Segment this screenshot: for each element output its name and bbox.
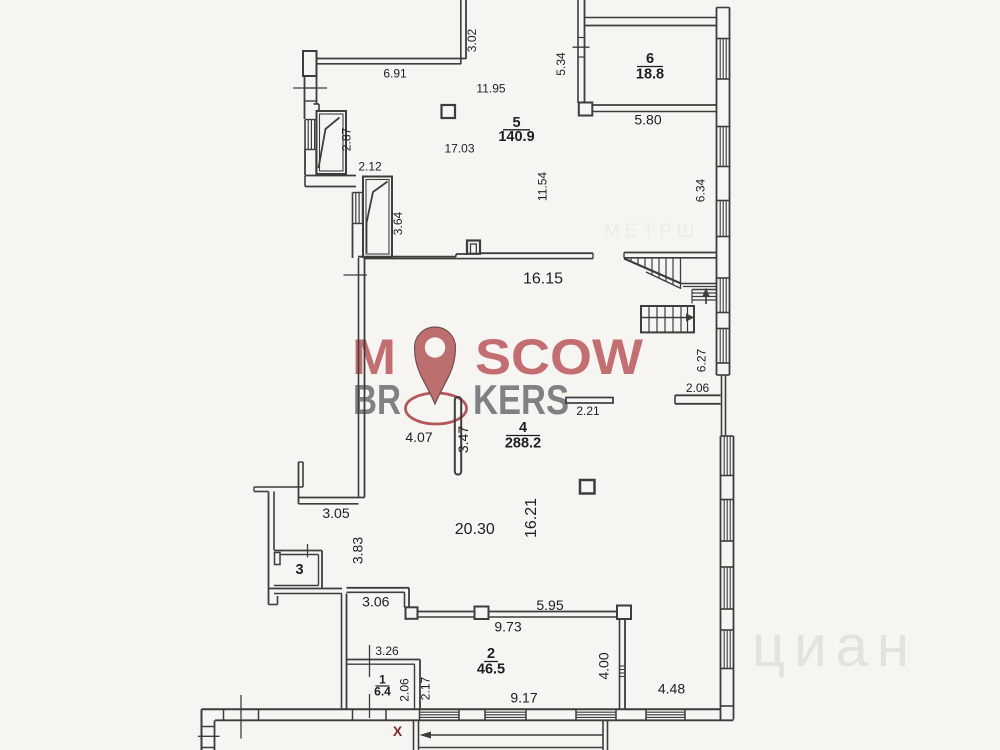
- svg-text:4.00: 4.00: [596, 652, 612, 679]
- svg-text:6.27: 6.27: [695, 348, 709, 372]
- svg-text:5.95: 5.95: [536, 597, 563, 613]
- svg-text:288.2: 288.2: [505, 436, 541, 452]
- svg-text:16.21: 16.21: [523, 498, 540, 538]
- svg-text:2.12: 2.12: [358, 160, 382, 174]
- svg-text:6.4: 6.4: [374, 685, 391, 699]
- svg-text:5.34: 5.34: [554, 52, 568, 76]
- svg-text:2.21: 2.21: [576, 404, 600, 418]
- svg-text:2.87: 2.87: [340, 127, 354, 151]
- svg-text:2.17: 2.17: [419, 676, 433, 700]
- svg-text:17.03: 17.03: [444, 142, 474, 156]
- svg-text:6.91: 6.91: [383, 67, 407, 81]
- svg-text:20.30: 20.30: [455, 521, 495, 538]
- svg-text:3.05: 3.05: [322, 505, 349, 521]
- svg-text:МЕТРШ: МЕТРШ: [604, 221, 699, 242]
- svg-text:4.48: 4.48: [658, 681, 685, 697]
- svg-text:X: X: [393, 723, 403, 739]
- svg-text:11.54: 11.54: [536, 172, 550, 201]
- svg-text:циан: циан: [752, 614, 918, 679]
- svg-text:4.07: 4.07: [405, 429, 432, 445]
- svg-text:3.06: 3.06: [362, 594, 389, 610]
- svg-text:6.34: 6.34: [694, 178, 708, 202]
- svg-text:3.26: 3.26: [375, 644, 399, 658]
- svg-text:3.64: 3.64: [391, 211, 405, 235]
- svg-text:11.95: 11.95: [476, 82, 505, 96]
- svg-text:3.02: 3.02: [465, 28, 479, 52]
- svg-text:BR: BR: [353, 376, 401, 423]
- svg-text:5.80: 5.80: [634, 112, 661, 128]
- svg-text:46.5: 46.5: [477, 662, 505, 678]
- svg-text:18.8: 18.8: [636, 67, 664, 83]
- svg-text:3: 3: [295, 562, 303, 578]
- svg-text:KERS: KERS: [473, 376, 569, 423]
- svg-text:2.06: 2.06: [686, 381, 710, 395]
- svg-text:140.9: 140.9: [498, 129, 534, 145]
- svg-text:16.15: 16.15: [523, 271, 563, 288]
- svg-text:2.06: 2.06: [398, 678, 412, 702]
- svg-text:9.17: 9.17: [510, 690, 537, 706]
- svg-text:4: 4: [519, 420, 527, 436]
- svg-text:6: 6: [646, 51, 654, 67]
- svg-text:3.47: 3.47: [455, 426, 471, 453]
- svg-text:9.73: 9.73: [494, 619, 521, 635]
- svg-text:2: 2: [487, 646, 495, 662]
- svg-text:3.83: 3.83: [350, 537, 366, 564]
